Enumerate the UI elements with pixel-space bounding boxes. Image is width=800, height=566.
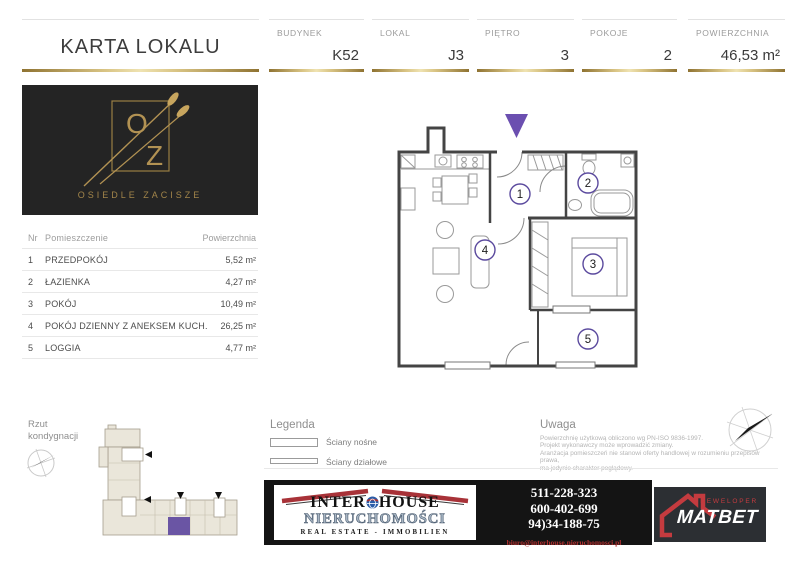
table-row: 5 LOGGIA 4,77 m² [22, 337, 258, 359]
header-field-pokoje: POKOJE 2 [582, 19, 677, 72]
floor-plan: 1 2 3 4 5 [385, 108, 647, 376]
agency-name-mid: NIERUCHOMOŚCI [274, 511, 476, 528]
email-link[interactable]: biuro@interhouse.nieruchomosci.pl [507, 538, 622, 547]
room-nr: 3 [28, 299, 33, 309]
header-field-pietro: PIĘTRO 3 [477, 19, 574, 72]
phone-list: 511-228-323 600-402-699 94)34-188-75 biu… [476, 485, 652, 550]
living-room-furniture-icon [433, 222, 489, 303]
window-icon [445, 306, 595, 369]
room-name: POKÓJ DZIENNY Z ANEKSEM KUCH. [45, 321, 208, 331]
svg-text:O: O [126, 108, 148, 139]
globe-icon [366, 496, 379, 509]
field-value: J3 [448, 47, 464, 64]
apartment-card-page: KARTA LOKALU BUDYNEK K52 LOKAL J3 PIĘTRO… [0, 0, 800, 566]
building-outline-map [95, 418, 245, 540]
legend-item-label: Ściany działowe [326, 457, 387, 467]
agency-name-left: INTER [310, 494, 366, 511]
developer-tagline: DEWELOPER [700, 498, 758, 505]
field-value: 2 [664, 47, 672, 64]
col-header-nr: Nr [28, 233, 38, 243]
svg-text:3: 3 [590, 259, 596, 271]
developer-name: MATBET [676, 507, 758, 529]
entrance-arrow-icon [505, 114, 528, 138]
room-area: 4,77 m² [225, 343, 256, 353]
estate-logo-name: OSIEDLE ZACISZE [78, 190, 203, 200]
entrance-triangles [144, 451, 222, 503]
field-label: LOKAL [380, 28, 410, 38]
footer-divider [264, 468, 778, 469]
header-field-lokal: LOKAL J3 [372, 19, 469, 72]
kitchen-furniture-icon [401, 155, 490, 210]
field-label: POKOJE [590, 28, 628, 38]
field-label: PIĘTRO [485, 28, 520, 38]
gold-divider [269, 69, 364, 72]
phone-item: 94)34-188-75 [476, 516, 652, 532]
legend-item: Ściany działowe [270, 454, 420, 467]
svg-text:1: 1 [517, 189, 523, 201]
field-label: POWIERZCHNIA [696, 28, 769, 38]
highlighted-unit [168, 517, 190, 535]
svg-text:5: 5 [585, 334, 591, 346]
agency-banner: INTERHOUSE NIERUCHOMOŚCI REAL ESTATE - I… [264, 480, 652, 545]
phone-item: 511-228-323 [476, 485, 652, 501]
phone-item: 600-402-699 [476, 501, 652, 517]
load-bearing-wall-swatch [270, 438, 318, 447]
legend-item: Ściany nośne [270, 436, 420, 449]
partition-wall-swatch [270, 458, 318, 464]
table-row: 1 PRZEDPOKÓJ 5,52 m² [22, 249, 258, 271]
agency-logo: INTERHOUSE NIERUCHOMOŚCI REAL ESTATE - I… [274, 485, 476, 540]
field-value: 3 [561, 47, 569, 64]
field-label: BUDYNEK [277, 28, 322, 38]
gold-divider [582, 69, 677, 72]
page-title-block: KARTA LOKALU [22, 19, 259, 72]
field-value: 46,53 m² [721, 47, 780, 64]
legend-item-label: Ściany nośne [326, 437, 377, 447]
agency-name-bottom: REAL ESTATE - IMMOBILIEN [274, 529, 476, 536]
svg-text:2: 2 [585, 178, 591, 190]
table-row: 2 ŁAZIENKA 4,27 m² [22, 271, 258, 293]
col-header-area: Powierzchnia [202, 233, 256, 243]
room-area: 5,52 m² [225, 255, 256, 265]
rooms-table: Nr Pomieszczenie Powierzchnia 1 PRZEDPOK… [22, 228, 258, 359]
legend: Legenda Ściany nośne Ściany działowe [270, 419, 420, 467]
room-name: POKÓJ [45, 299, 77, 309]
page-title: KARTA LOKALU [22, 36, 259, 59]
room-name: PRZEDPOKÓJ [45, 255, 108, 265]
room-nr: 4 [28, 321, 33, 331]
gold-divider [688, 69, 785, 72]
wardrobe-icon [528, 155, 563, 307]
room-nr: 1 [28, 255, 33, 265]
legend-title: Legenda [270, 419, 420, 431]
room-nr: 2 [28, 277, 33, 287]
col-header-name: Pomieszczenie [45, 233, 108, 243]
room-name: ŁAZIENKA [45, 277, 90, 287]
agency-name-right: HOUSE [379, 494, 440, 511]
room-name: LOGGIA [45, 343, 81, 353]
room-area: 10,49 m² [220, 299, 256, 309]
room-nr: 5 [28, 343, 33, 353]
level-plan-label-line2: kondygnacji [28, 431, 78, 443]
field-value: K52 [332, 47, 359, 64]
table-row: 3 POKÓJ 10,49 m² [22, 293, 258, 315]
svg-text:Z: Z [146, 140, 163, 171]
room-area: 4,27 m² [225, 277, 256, 287]
gold-divider [372, 69, 469, 72]
table-row: 4 POKÓJ DZIENNY Z ANEKSEM KUCH. 26,25 m² [22, 315, 258, 337]
compass-icon [24, 446, 58, 480]
agency-name-row: INTERHOUSE [274, 494, 476, 512]
compass-icon [722, 402, 780, 460]
rooms-table-header: Nr Pomieszczenie Powierzchnia [22, 228, 258, 249]
gold-divider [477, 69, 574, 72]
room-area: 26,25 m² [220, 321, 256, 331]
level-plan-label: Rzut kondygnacji [28, 419, 78, 443]
developer-logo: DEWELOPER MATBET [654, 487, 766, 542]
svg-text:4: 4 [482, 245, 489, 257]
level-plan-label-line1: Rzut [28, 419, 78, 431]
estate-logo-monogram-icon: O Z OSIEDLE ZACISZE [22, 85, 258, 215]
header-field-budynek: BUDYNEK K52 [269, 19, 364, 72]
header-field-powierzchnia: POWIERZCHNIA 46,53 m² [688, 19, 785, 72]
gold-divider [22, 69, 259, 72]
estate-logo: O Z OSIEDLE ZACISZE [22, 85, 258, 215]
